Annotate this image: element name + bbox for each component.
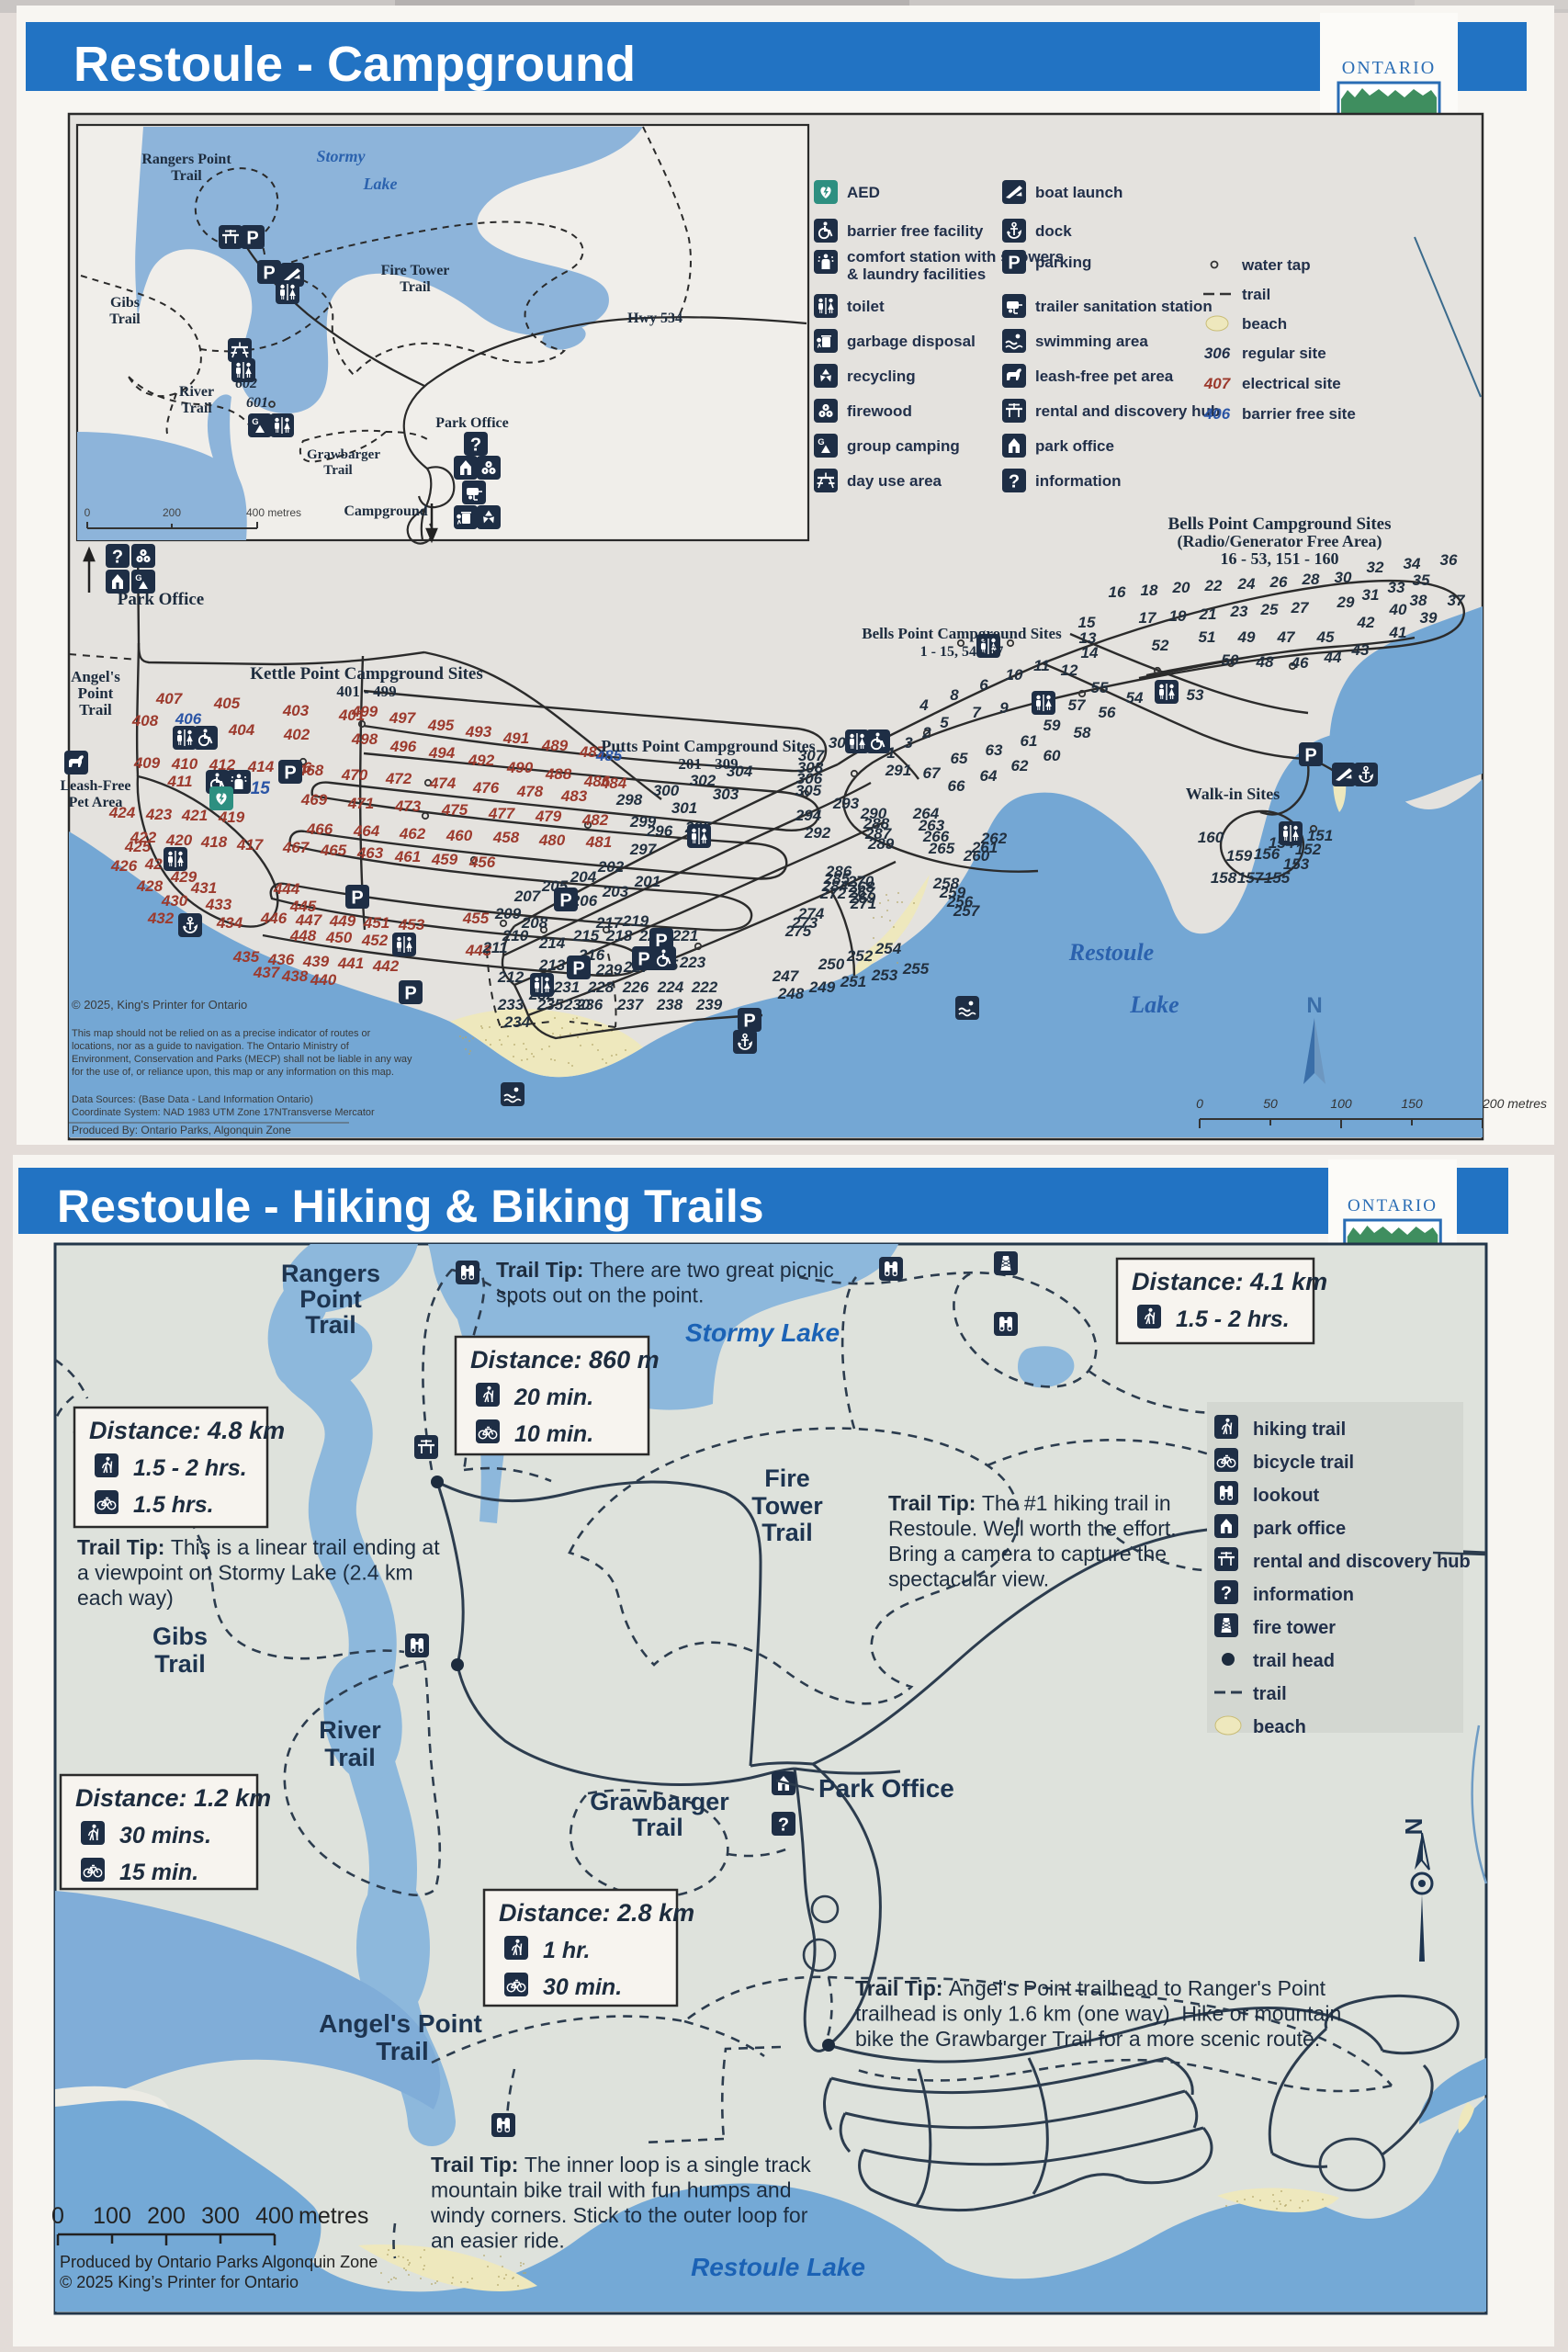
svg-text:237: 237 bbox=[616, 996, 645, 1013]
svg-text:firewood: firewood bbox=[847, 402, 912, 420]
svg-text:Point: Point bbox=[299, 1285, 362, 1313]
svg-text:466: 466 bbox=[306, 820, 333, 838]
svg-text:30 mins.: 30 mins. bbox=[119, 1823, 211, 1849]
svg-text:224: 224 bbox=[657, 978, 684, 996]
svg-text:rental and discovery hub: rental and discovery hub bbox=[1253, 1552, 1471, 1572]
svg-text:0: 0 bbox=[51, 2203, 64, 2229]
svg-text:Point: Point bbox=[78, 684, 114, 702]
svg-text:442: 442 bbox=[372, 957, 400, 975]
svg-text:Trail: Trail bbox=[761, 1519, 813, 1546]
svg-text:This map should not be relied: This map should not be relied on as a pr… bbox=[72, 1028, 371, 1039]
svg-text:601: 601 bbox=[246, 395, 268, 411]
svg-text:489: 489 bbox=[541, 737, 569, 754]
svg-text:404: 404 bbox=[228, 721, 255, 739]
svg-text:289: 289 bbox=[867, 835, 895, 853]
svg-text:67: 67 bbox=[923, 764, 942, 782]
svg-text:(Radio/Generator Free Area): (Radio/Generator Free Area) bbox=[1178, 532, 1382, 551]
svg-text:Angel's: Angel's bbox=[71, 668, 120, 685]
svg-text:211: 211 bbox=[481, 939, 507, 956]
svg-text:159: 159 bbox=[1226, 847, 1253, 865]
svg-text:480: 480 bbox=[538, 831, 566, 849]
svg-text:7: 7 bbox=[972, 704, 982, 721]
svg-text:483: 483 bbox=[560, 787, 588, 805]
svg-text:50: 50 bbox=[1222, 651, 1239, 669]
svg-text:292: 292 bbox=[804, 824, 831, 842]
svg-text:236: 236 bbox=[576, 996, 604, 1013]
svg-text:beach: beach bbox=[1242, 315, 1287, 333]
svg-text:© 2025 King’s Printer for Onta: © 2025 King’s Printer for Ontario bbox=[60, 2273, 299, 2291]
svg-text:spectacular view.: spectacular view. bbox=[888, 1567, 1049, 1591]
svg-text:496: 496 bbox=[389, 738, 417, 755]
svg-text:comfort station with showers: comfort station with showers bbox=[847, 248, 1064, 266]
svg-text:each way): each way) bbox=[77, 1586, 174, 1610]
svg-text:441: 441 bbox=[337, 955, 364, 972]
svg-text:park office: park office bbox=[1035, 437, 1114, 455]
svg-text:Produced By: Ontario Parks, Al: Produced By: Ontario Parks, Algonquin Zo… bbox=[72, 1124, 291, 1136]
svg-text:26: 26 bbox=[1269, 573, 1288, 591]
svg-text:hiking trail: hiking trail bbox=[1253, 1419, 1346, 1440]
svg-text:209: 209 bbox=[494, 905, 522, 922]
svg-text:66: 66 bbox=[948, 777, 965, 795]
svg-text:497: 497 bbox=[389, 709, 417, 727]
svg-text:453: 453 bbox=[398, 916, 425, 933]
svg-text:31: 31 bbox=[1362, 586, 1380, 604]
svg-text:291: 291 bbox=[885, 762, 911, 779]
svg-text:461: 461 bbox=[394, 848, 421, 865]
svg-text:ONTARIO: ONTARIO bbox=[1348, 1196, 1438, 1216]
svg-text:200: 200 bbox=[147, 2203, 186, 2229]
svg-text:61: 61 bbox=[1021, 732, 1038, 750]
svg-text:207: 207 bbox=[513, 888, 542, 905]
svg-text:158: 158 bbox=[1211, 869, 1237, 887]
svg-text:214: 214 bbox=[538, 934, 566, 952]
svg-text:157: 157 bbox=[1237, 869, 1265, 887]
svg-text:469: 469 bbox=[300, 791, 328, 808]
svg-text:spots out on the point.: spots out on the point. bbox=[496, 1283, 704, 1307]
svg-text:12: 12 bbox=[1061, 661, 1078, 679]
svg-text:Data Sources: (Base Data - Lan: Data Sources: (Base Data - Land Informat… bbox=[72, 1094, 313, 1105]
svg-text:29: 29 bbox=[1337, 594, 1355, 611]
svg-text:213: 213 bbox=[538, 956, 566, 974]
svg-text:252: 252 bbox=[846, 947, 874, 965]
svg-text:Trail Tip: There are two great: Trail Tip: There are two great picnic bbox=[496, 1258, 834, 1282]
svg-text:Environment, Conservation and: Environment, Conservation and Parks (MEC… bbox=[72, 1054, 412, 1065]
svg-text:Trail: Trail bbox=[79, 701, 112, 718]
svg-text:43: 43 bbox=[1351, 641, 1370, 659]
svg-text:248: 248 bbox=[777, 985, 805, 1002]
svg-text:rental and discovery hub: rental and discovery hub bbox=[1035, 402, 1220, 420]
svg-text:488: 488 bbox=[545, 765, 572, 783]
svg-text:294: 294 bbox=[795, 807, 822, 824]
svg-text:411: 411 bbox=[166, 773, 192, 790]
svg-text:Trail: Trail bbox=[171, 168, 202, 184]
svg-text:417: 417 bbox=[236, 836, 265, 854]
svg-text:400: 400 bbox=[255, 2203, 294, 2229]
svg-text:14: 14 bbox=[1081, 644, 1099, 661]
svg-text:regular site: regular site bbox=[1242, 345, 1326, 362]
svg-text:463: 463 bbox=[356, 844, 384, 862]
svg-text:229: 229 bbox=[595, 961, 623, 978]
svg-text:254: 254 bbox=[874, 940, 902, 957]
svg-text:253: 253 bbox=[871, 967, 898, 984]
svg-text:406: 406 bbox=[175, 710, 202, 728]
svg-text:62: 62 bbox=[1011, 757, 1029, 775]
svg-text:420: 420 bbox=[165, 831, 193, 849]
svg-text:Leash-Free: Leash-Free bbox=[60, 778, 130, 794]
svg-text:456: 456 bbox=[468, 854, 496, 871]
svg-text:toilet: toilet bbox=[847, 298, 885, 315]
svg-text:18: 18 bbox=[1141, 582, 1158, 599]
svg-text:498: 498 bbox=[351, 730, 378, 748]
svg-text:493: 493 bbox=[465, 723, 492, 741]
svg-text:495: 495 bbox=[427, 717, 455, 734]
svg-text:Restoule - Hiking & Biking Tra: Restoule - Hiking & Biking Trails bbox=[57, 1181, 764, 1232]
svg-text:Trail: Trail bbox=[324, 1744, 376, 1771]
svg-text:42: 42 bbox=[1357, 614, 1375, 631]
svg-text:305: 305 bbox=[795, 782, 822, 799]
svg-text:Trail: Trail bbox=[376, 2037, 429, 2065]
svg-text:16: 16 bbox=[1109, 583, 1126, 601]
svg-text:9: 9 bbox=[999, 699, 1009, 717]
svg-text:482: 482 bbox=[581, 811, 609, 829]
svg-text:Trail Tip: The inner loop is a: Trail Tip: The inner loop is a single tr… bbox=[431, 2153, 811, 2177]
svg-text:Rangers: Rangers bbox=[281, 1260, 380, 1287]
svg-text:602: 602 bbox=[235, 376, 257, 391]
svg-text:448: 448 bbox=[289, 927, 317, 944]
svg-text:0: 0 bbox=[85, 506, 91, 519]
svg-text:272: 272 bbox=[819, 885, 847, 902]
svg-text:476: 476 bbox=[472, 779, 500, 797]
svg-text:52: 52 bbox=[1152, 637, 1169, 654]
svg-text:63: 63 bbox=[986, 741, 1003, 759]
svg-text:499: 499 bbox=[351, 703, 378, 720]
svg-text:492: 492 bbox=[468, 752, 495, 769]
svg-text:432: 432 bbox=[147, 910, 175, 927]
svg-text:297: 297 bbox=[629, 841, 658, 858]
svg-text:271: 271 bbox=[850, 895, 876, 912]
svg-text:275: 275 bbox=[784, 922, 812, 940]
svg-text:Produced by Ontario Parks Algo: Produced by Ontario Parks Algonquin Zone bbox=[60, 2253, 378, 2271]
svg-text:58: 58 bbox=[1074, 724, 1091, 741]
svg-text:Campground: Campground bbox=[344, 503, 427, 519]
svg-text:215: 215 bbox=[572, 927, 600, 944]
svg-text:8: 8 bbox=[950, 686, 959, 704]
svg-text:57: 57 bbox=[1068, 696, 1087, 714]
svg-text:251: 251 bbox=[840, 973, 866, 990]
svg-text:200: 200 bbox=[163, 506, 181, 519]
svg-text:48: 48 bbox=[1256, 653, 1274, 671]
svg-text:Restoule Lake: Restoule Lake bbox=[691, 2253, 865, 2281]
svg-text:25: 25 bbox=[1260, 601, 1279, 618]
svg-text:249: 249 bbox=[808, 978, 836, 996]
svg-text:451: 451 bbox=[363, 914, 389, 932]
svg-text:Stormy: Stormy bbox=[316, 147, 366, 165]
svg-text:478: 478 bbox=[516, 783, 544, 800]
svg-text:Pet Area: Pet Area bbox=[69, 795, 123, 810]
svg-text:434: 434 bbox=[216, 914, 243, 932]
svg-text:257: 257 bbox=[953, 902, 981, 920]
svg-text:296: 296 bbox=[646, 822, 673, 840]
svg-text:Lake: Lake bbox=[1129, 991, 1179, 1018]
svg-text:dock: dock bbox=[1035, 222, 1072, 240]
svg-text:300: 300 bbox=[201, 2203, 240, 2229]
svg-text:155: 155 bbox=[1264, 869, 1291, 887]
svg-text:446: 446 bbox=[260, 910, 288, 927]
svg-text:402: 402 bbox=[283, 726, 310, 743]
svg-text:37: 37 bbox=[1448, 592, 1466, 609]
svg-text:54: 54 bbox=[1126, 689, 1144, 707]
svg-text:1 - 15, 54 - 67: 1 - 15, 54 - 67 bbox=[920, 644, 1004, 660]
svg-text:River: River bbox=[319, 1716, 381, 1744]
svg-text:1 hr.: 1 hr. bbox=[543, 1938, 590, 1963]
svg-text:22: 22 bbox=[1204, 577, 1223, 594]
svg-text:3: 3 bbox=[904, 734, 913, 752]
svg-text:1.5 - 2 hrs.: 1.5 - 2 hrs. bbox=[1176, 1306, 1290, 1332]
svg-text:barrier free site: barrier free site bbox=[1242, 405, 1356, 423]
svg-text:300: 300 bbox=[653, 782, 680, 799]
svg-text:260: 260 bbox=[963, 847, 990, 865]
svg-text:222: 222 bbox=[691, 978, 718, 996]
svg-text:© 2025, King's Printer for Ont: © 2025, King's Printer for Ontario bbox=[72, 998, 247, 1012]
svg-text:401 - 499: 401 - 499 bbox=[336, 683, 396, 700]
svg-text:471: 471 bbox=[347, 795, 374, 812]
svg-text:Rangers Point: Rangers Point bbox=[141, 152, 231, 167]
svg-text:218: 218 bbox=[605, 927, 633, 944]
svg-text:Fire Tower: Fire Tower bbox=[381, 263, 450, 278]
svg-text:438: 438 bbox=[281, 967, 309, 985]
svg-text:day use area: day use area bbox=[847, 472, 942, 490]
svg-text:Distance: 1.2 km: Distance: 1.2 km bbox=[75, 1784, 271, 1812]
svg-text:parking: parking bbox=[1035, 254, 1091, 271]
svg-text:160: 160 bbox=[1198, 829, 1224, 846]
svg-text:Restoule: Restoule bbox=[1068, 939, 1154, 966]
svg-text:N: N bbox=[1306, 993, 1322, 1018]
svg-text:Walk-in Sites: Walk-in Sites bbox=[1186, 785, 1280, 803]
svg-text:group camping: group camping bbox=[847, 437, 960, 455]
svg-text:459: 459 bbox=[431, 851, 458, 868]
svg-text:400 metres: 400 metres bbox=[246, 506, 301, 519]
svg-text:464: 464 bbox=[353, 822, 380, 840]
svg-text:460: 460 bbox=[446, 827, 473, 844]
svg-text:421: 421 bbox=[181, 807, 208, 824]
svg-text:Trail: Trail bbox=[632, 1814, 683, 1841]
svg-text:Angel's Point: Angel's Point bbox=[319, 2009, 482, 2038]
svg-text:recycling: recycling bbox=[847, 367, 916, 385]
svg-text:Grawbarger: Grawbarger bbox=[307, 447, 380, 462]
svg-text:449: 449 bbox=[329, 912, 356, 930]
svg-text:64: 64 bbox=[980, 767, 998, 785]
svg-text:65: 65 bbox=[951, 750, 968, 767]
svg-text:440: 440 bbox=[310, 971, 337, 989]
svg-text:swimming area: swimming area bbox=[1035, 333, 1148, 350]
svg-text:490: 490 bbox=[506, 759, 534, 776]
svg-text:444: 444 bbox=[273, 880, 300, 898]
svg-text:11: 11 bbox=[1033, 657, 1050, 674]
svg-text:electrical site: electrical site bbox=[1242, 375, 1341, 392]
svg-text:473: 473 bbox=[394, 797, 422, 815]
svg-text:293: 293 bbox=[832, 795, 860, 812]
svg-text:265: 265 bbox=[928, 840, 955, 857]
svg-text:20 min.: 20 min. bbox=[513, 1385, 593, 1410]
svg-text:410: 410 bbox=[171, 755, 198, 773]
svg-text:& laundry facilities: & laundry facilities bbox=[847, 266, 986, 283]
svg-text:35: 35 bbox=[1413, 571, 1430, 589]
svg-text:301: 301 bbox=[671, 799, 697, 817]
svg-text:484: 484 bbox=[600, 775, 627, 792]
svg-text:238: 238 bbox=[656, 996, 683, 1013]
svg-text:450: 450 bbox=[325, 929, 353, 946]
svg-text:15 min.: 15 min. bbox=[119, 1860, 198, 1885]
svg-text:Trail: Trail bbox=[154, 1650, 206, 1678]
svg-text:Trail: Trail bbox=[323, 463, 352, 478]
svg-text:200 metres: 200 metres bbox=[1482, 1096, 1547, 1111]
svg-text:202: 202 bbox=[597, 858, 625, 876]
svg-text:462: 462 bbox=[399, 825, 426, 842]
svg-text:30 min.: 30 min. bbox=[543, 1974, 622, 2000]
svg-text:423: 423 bbox=[145, 806, 173, 823]
svg-text:221: 221 bbox=[671, 927, 698, 944]
svg-text:Distance: 860 m: Distance: 860 m bbox=[470, 1346, 660, 1374]
svg-text:an easier ride.: an easier ride. bbox=[431, 2229, 565, 2253]
svg-text:477: 477 bbox=[488, 805, 516, 822]
svg-text:Trail: Trail bbox=[109, 311, 141, 327]
svg-text:452: 452 bbox=[361, 932, 389, 949]
svg-text:203: 203 bbox=[602, 883, 629, 900]
svg-text:247: 247 bbox=[772, 967, 800, 985]
svg-text:Stormy Lake: Stormy Lake bbox=[685, 1318, 840, 1347]
svg-text:trail: trail bbox=[1253, 1684, 1287, 1704]
svg-text:470: 470 bbox=[341, 766, 368, 784]
svg-text:50: 50 bbox=[1263, 1096, 1278, 1111]
svg-text:21: 21 bbox=[1199, 605, 1217, 623]
svg-text:windy corners. Stick to the ou: windy corners. Stick to the outer loop f… bbox=[430, 2203, 808, 2227]
svg-text:34: 34 bbox=[1404, 555, 1421, 572]
svg-text:60: 60 bbox=[1043, 747, 1061, 764]
svg-text:458: 458 bbox=[492, 829, 520, 846]
svg-text:Trail: Trail bbox=[305, 1311, 356, 1339]
svg-text:Gibs: Gibs bbox=[110, 295, 140, 311]
svg-text:44: 44 bbox=[1324, 649, 1342, 666]
svg-text:53: 53 bbox=[1187, 686, 1204, 704]
svg-text:Coordinate System: NAD 1983 UT: Coordinate System: NAD 1983 UTM Zone 17N… bbox=[72, 1107, 375, 1118]
svg-text:16 - 53, 151 - 160: 16 - 53, 151 - 160 bbox=[1221, 549, 1339, 568]
svg-text:4: 4 bbox=[919, 696, 929, 714]
svg-text:431: 431 bbox=[190, 879, 217, 897]
svg-text:406: 406 bbox=[1203, 405, 1231, 423]
svg-text:barrier free facility: barrier free facility bbox=[847, 222, 984, 240]
svg-text:455: 455 bbox=[462, 910, 490, 927]
svg-text:bicycle trail: bicycle trail bbox=[1253, 1453, 1354, 1473]
svg-text:Distance: 2.8 km: Distance: 2.8 km bbox=[499, 1899, 694, 1927]
svg-text:405: 405 bbox=[213, 695, 241, 712]
svg-text:201: 201 bbox=[634, 873, 660, 890]
svg-text:Distance: 4.8 km: Distance: 4.8 km bbox=[89, 1417, 285, 1444]
svg-text:59: 59 bbox=[1043, 717, 1061, 734]
svg-text:6: 6 bbox=[979, 676, 988, 694]
svg-text:19: 19 bbox=[1169, 607, 1187, 625]
svg-text:Trail Tip: This is a linear tr: Trail Tip: This is a linear trail ending… bbox=[77, 1535, 440, 1559]
svg-text:223: 223 bbox=[679, 954, 706, 971]
svg-text:231: 231 bbox=[553, 978, 580, 996]
svg-text:Tower: Tower bbox=[751, 1492, 823, 1520]
svg-text:information: information bbox=[1253, 1585, 1354, 1605]
svg-text:17: 17 bbox=[1139, 609, 1157, 627]
svg-text:beach: beach bbox=[1253, 1717, 1306, 1737]
svg-text:garbage disposal: garbage disposal bbox=[847, 333, 976, 350]
svg-text:414: 414 bbox=[247, 758, 275, 775]
svg-text:419: 419 bbox=[218, 808, 245, 826]
svg-text:Distance: 4.1 km: Distance: 4.1 km bbox=[1132, 1268, 1327, 1295]
svg-text:250: 250 bbox=[818, 955, 845, 973]
svg-text:255: 255 bbox=[902, 960, 930, 978]
svg-text:a viewpoint on Stormy Lake (2.: a viewpoint on Stormy Lake (2.4 km bbox=[77, 1561, 413, 1585]
svg-text:472: 472 bbox=[385, 770, 412, 787]
svg-text:428: 428 bbox=[136, 877, 164, 895]
svg-text:24: 24 bbox=[1237, 575, 1256, 593]
svg-text:41: 41 bbox=[1389, 624, 1407, 641]
svg-text:N: N bbox=[1400, 1818, 1427, 1836]
svg-text:Fire: Fire bbox=[764, 1464, 810, 1492]
svg-text:Gibs: Gibs bbox=[152, 1623, 208, 1650]
svg-text:491: 491 bbox=[502, 729, 529, 747]
svg-text:100: 100 bbox=[1330, 1096, 1352, 1111]
svg-text:Kettle Point Campground Sites: Kettle Point Campground Sites bbox=[250, 664, 483, 684]
svg-text:407: 407 bbox=[1203, 375, 1232, 392]
svg-text:bike the Grawbarger Trail for: bike the Grawbarger Trail for a more sce… bbox=[855, 2027, 1320, 2051]
svg-text:403: 403 bbox=[282, 702, 310, 719]
svg-text:park office: park office bbox=[1253, 1519, 1346, 1539]
svg-text:fire tower: fire tower bbox=[1253, 1618, 1336, 1638]
svg-text:10 min.: 10 min. bbox=[514, 1421, 593, 1447]
svg-text:100: 100 bbox=[93, 2203, 131, 2229]
svg-text:494: 494 bbox=[428, 744, 456, 762]
svg-text:AED: AED bbox=[847, 184, 880, 201]
svg-text:River: River bbox=[179, 384, 214, 400]
svg-text:433: 433 bbox=[205, 896, 232, 913]
svg-text:Trail Tip: Angel's Point trail: Trail Tip: Angel's Point trailhead to Ra… bbox=[855, 1976, 1326, 2000]
svg-text:Lake: Lake bbox=[363, 175, 398, 193]
svg-text:45: 45 bbox=[1316, 628, 1335, 646]
svg-text:1.5 hrs.: 1.5 hrs. bbox=[133, 1492, 214, 1518]
svg-text:Bells Point Campground Sites: Bells Point Campground Sites bbox=[862, 625, 1062, 642]
svg-text:33: 33 bbox=[1388, 579, 1405, 596]
svg-text:437: 437 bbox=[253, 964, 281, 981]
svg-text:ONTARIO: ONTARIO bbox=[1342, 58, 1436, 78]
svg-text:Trail: Trail bbox=[400, 279, 431, 295]
svg-text:475: 475 bbox=[441, 801, 468, 819]
svg-text:150: 150 bbox=[1401, 1096, 1423, 1111]
svg-text:228: 228 bbox=[587, 978, 615, 996]
svg-text:239: 239 bbox=[695, 996, 723, 1013]
svg-text:36: 36 bbox=[1440, 551, 1458, 569]
svg-text:27: 27 bbox=[1291, 599, 1310, 616]
svg-text:40: 40 bbox=[1389, 601, 1407, 618]
svg-text:156: 156 bbox=[1254, 845, 1280, 863]
svg-text:235: 235 bbox=[536, 996, 564, 1013]
svg-text:metres: metres bbox=[299, 2203, 368, 2229]
svg-text:mountain bike trail with fun h: mountain bike trail with fun humps and bbox=[431, 2178, 792, 2202]
svg-text:306: 306 bbox=[1204, 345, 1231, 362]
svg-text:Park Office: Park Office bbox=[118, 590, 204, 609]
svg-text:Trail Tip: The #1 hiking trail: Trail Tip: The #1 hiking trail in bbox=[888, 1491, 1171, 1515]
svg-text:418: 418 bbox=[200, 833, 228, 851]
svg-text:32: 32 bbox=[1367, 559, 1384, 576]
svg-text:46: 46 bbox=[1291, 654, 1309, 672]
svg-text:23: 23 bbox=[1230, 603, 1248, 620]
svg-text:430: 430 bbox=[161, 892, 188, 910]
svg-text:Park Office: Park Office bbox=[435, 415, 509, 431]
svg-text:trailer sanitation station: trailer sanitation station bbox=[1035, 298, 1213, 315]
